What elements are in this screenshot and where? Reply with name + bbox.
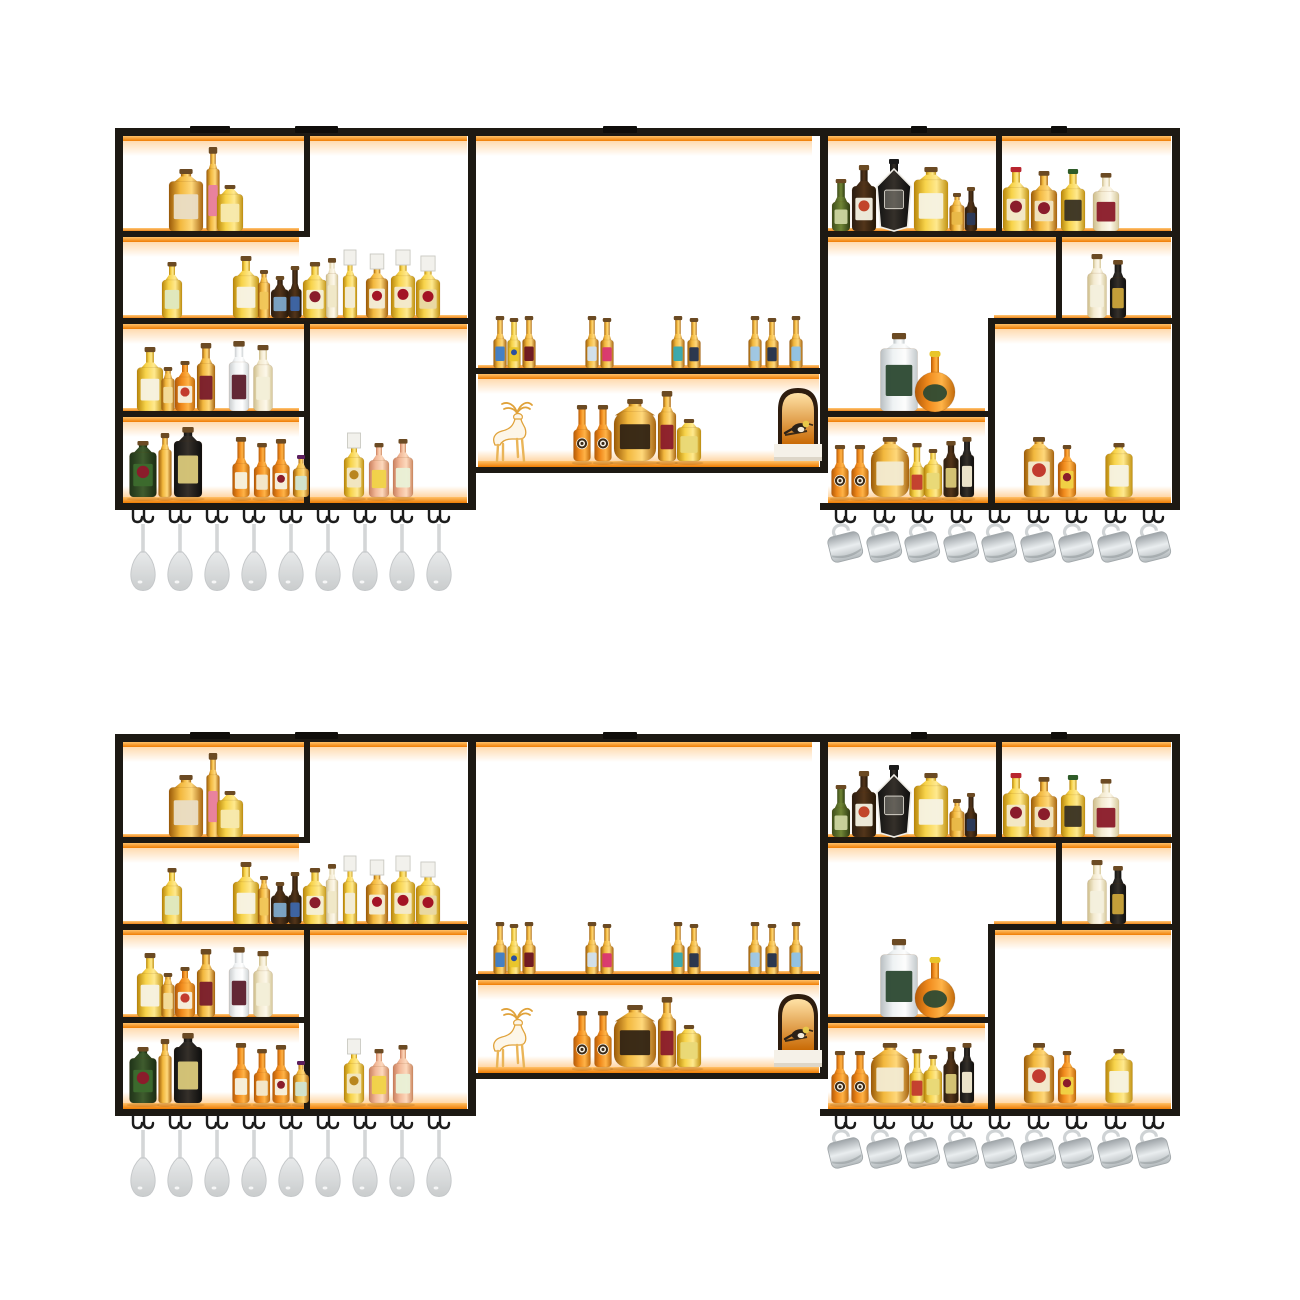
bottle [1059, 169, 1088, 235]
bar-shelf-scene [110, 732, 1190, 1212]
bottle [195, 949, 217, 1021]
hanging-hook [170, 510, 179, 522]
hanging-mug [824, 521, 864, 563]
hanging-hook [923, 1116, 932, 1128]
left-top-cell-bottles [166, 753, 246, 841]
wine-glass [168, 524, 192, 591]
right-top-left-bottles [830, 159, 978, 235]
middle-top-beer-bottles [492, 922, 804, 978]
bottle [584, 922, 600, 978]
mug-rack [824, 510, 1172, 563]
hanging-hook [1077, 510, 1086, 522]
bottle [1103, 443, 1135, 501]
wine-glass [353, 1130, 377, 1197]
wine-glass [205, 524, 229, 591]
middle-top-beer-bottles [492, 316, 804, 372]
bottle [908, 1049, 926, 1107]
hanging-hook [440, 510, 449, 522]
hanging-hook [366, 1116, 375, 1128]
hanging-hook [170, 1116, 179, 1128]
hanging-hook [875, 1116, 884, 1128]
bottle [1056, 1051, 1078, 1107]
hanging-hook [329, 1116, 338, 1128]
bottle [231, 437, 251, 501]
bottle [389, 250, 418, 322]
bottle [656, 391, 678, 465]
hanging-hook [392, 1116, 401, 1128]
frame-member [472, 467, 828, 473]
hanging-hook [318, 510, 327, 522]
right-bottom-left-bottles [830, 437, 976, 501]
bottle [656, 997, 678, 1071]
hanging-mug [1132, 521, 1172, 563]
bottle [414, 256, 443, 322]
left-top-cell-bottles [166, 147, 246, 235]
bottle [160, 868, 184, 928]
mounting-tab [603, 126, 637, 133]
bottle [1090, 173, 1121, 235]
bottle [342, 856, 359, 928]
bottle [908, 443, 926, 501]
hanging-hook [392, 510, 401, 522]
bottle [252, 443, 271, 501]
hanging-mug [1017, 521, 1057, 563]
bottle [610, 399, 660, 465]
hanging-hook [885, 510, 894, 522]
frame-member [988, 318, 1180, 324]
hanging-hook [836, 510, 845, 522]
bottle [257, 270, 271, 322]
bottle [959, 1043, 976, 1107]
mug-rack [824, 1116, 1172, 1169]
bottle [670, 316, 686, 372]
wine-glass-rack [131, 510, 451, 591]
hanging-hook [218, 1116, 227, 1128]
mounting-tab [190, 732, 230, 739]
hanging-mug [901, 1127, 941, 1169]
product-photo-canvas [0, 0, 1300, 1300]
hanging-hook [181, 510, 190, 522]
frame-member [1056, 837, 1062, 924]
bottle [342, 433, 366, 501]
bird-lamp [774, 388, 822, 461]
frame-member [996, 128, 1002, 231]
bottle [269, 882, 291, 928]
bottle [1086, 254, 1109, 322]
hanging-hook [207, 1116, 216, 1128]
wine-glass [131, 524, 155, 591]
bottle [959, 437, 976, 501]
bottle [675, 419, 704, 465]
wine-glass [131, 1130, 155, 1197]
bottle [964, 187, 978, 235]
bottle [1103, 1049, 1135, 1107]
hanging-mug [1017, 1127, 1057, 1169]
bottle [747, 922, 763, 978]
hanging-hook [1067, 1116, 1076, 1128]
bottle [127, 441, 159, 501]
frame-member [304, 734, 310, 837]
bottle [1108, 260, 1127, 322]
hanging-hook [952, 1116, 961, 1128]
bottle [942, 441, 960, 501]
bottle [367, 1049, 391, 1107]
bottle [166, 169, 207, 235]
frame-member [820, 734, 828, 1079]
bottle [850, 1051, 870, 1107]
hanging-hook [1154, 510, 1163, 522]
hanging-hook [292, 1116, 301, 1128]
hanging-hook [1144, 1116, 1153, 1128]
bottle [1028, 777, 1059, 841]
frame-member [472, 1073, 828, 1079]
bottle [364, 860, 390, 928]
wine-glass [205, 1130, 229, 1197]
hanging-hook [1039, 1116, 1048, 1128]
hanging-mug [940, 1127, 980, 1169]
bottle [391, 1045, 415, 1107]
bottle [686, 924, 702, 978]
hanging-mug [1094, 1127, 1134, 1169]
bottle [911, 167, 952, 235]
bottle [1000, 773, 1031, 841]
bottle [269, 276, 291, 322]
right-top-left-bottles [830, 765, 978, 841]
bar-shelf-display-bottom [110, 732, 1190, 1212]
hanging-hook [846, 510, 855, 522]
frame-member [820, 128, 828, 473]
frame-member [115, 128, 1180, 136]
bottle [301, 262, 330, 322]
bottle [367, 443, 391, 501]
mounting-tab [1051, 732, 1067, 739]
bottle [134, 347, 165, 415]
bottle [1021, 1043, 1057, 1107]
bottle [1021, 437, 1057, 501]
bottle [922, 1055, 944, 1107]
bottle [342, 1039, 366, 1107]
bottle [171, 427, 205, 501]
bottle [675, 1025, 704, 1071]
bottle [584, 316, 600, 372]
bottle [252, 951, 275, 1021]
bottle [195, 343, 217, 415]
hanging-hook [1106, 1116, 1115, 1128]
bottle [230, 862, 261, 928]
bar-shelf-scene [110, 126, 1190, 606]
bottle [850, 445, 870, 501]
bottle [830, 785, 852, 841]
bottle [506, 924, 522, 978]
bottle [364, 254, 390, 322]
bottle [788, 316, 804, 372]
wine-glass [390, 1130, 414, 1197]
bottle [521, 922, 537, 978]
mounting-tab [190, 126, 230, 133]
bottle [342, 250, 359, 322]
bottle [325, 258, 339, 322]
left-row2-bottles [160, 250, 442, 322]
right-mid-cell-bottles [1086, 860, 1128, 928]
hanging-hook [1039, 510, 1048, 522]
hanging-hook [923, 510, 932, 522]
hanging-hook [403, 1116, 412, 1128]
bottle [572, 405, 592, 465]
bottle [874, 765, 915, 841]
bottle [911, 957, 959, 1021]
bottle [1108, 866, 1127, 928]
hanging-mug [824, 1127, 864, 1169]
bottle [506, 318, 522, 372]
right-mid-shelf-bottles [877, 333, 959, 415]
bird-lamp [774, 994, 822, 1067]
hanging-hook [1144, 510, 1153, 522]
hanging-hook [875, 510, 884, 522]
mounting-tab [603, 732, 637, 739]
wine-glass [242, 1130, 266, 1197]
bottle [788, 922, 804, 978]
hanging-hook [913, 510, 922, 522]
frame-member [304, 128, 310, 231]
wine-glass [168, 1130, 192, 1197]
hanging-hook [846, 1116, 855, 1128]
bottle [942, 1047, 960, 1107]
left-row3-bottles [134, 341, 274, 415]
hanging-hook [1106, 510, 1115, 522]
frame-member [996, 734, 1002, 837]
bottle [160, 262, 184, 322]
bottle [127, 1047, 159, 1107]
hanging-hook [429, 510, 438, 522]
bar-shelf-display-top [110, 126, 1190, 606]
mounting-tab [295, 126, 338, 133]
bottle [1086, 860, 1109, 928]
bottle [1059, 775, 1088, 841]
bottle [252, 1049, 271, 1107]
hanging-hook [281, 1116, 290, 1128]
wine-glass-rack [131, 1116, 451, 1197]
bottle [171, 1033, 205, 1107]
bottle [948, 799, 966, 841]
bottle [867, 437, 913, 501]
bottle [877, 939, 921, 1021]
hanging-hook [207, 510, 216, 522]
hanging-mug [901, 521, 941, 563]
wine-glass [279, 1130, 303, 1197]
wine-glass [316, 1130, 340, 1197]
bottle [173, 967, 197, 1021]
hanging-hook [1000, 510, 1009, 522]
bottle [227, 947, 251, 1021]
bottle [850, 165, 879, 235]
bottle [830, 445, 850, 501]
bottle [572, 1011, 592, 1071]
bottle [874, 159, 915, 235]
bottle [287, 872, 303, 928]
hanging-hook [913, 1116, 922, 1128]
right-mid-shelf-bottles [877, 939, 959, 1021]
bottle [325, 864, 339, 928]
bottle [301, 868, 330, 928]
bottle [599, 924, 615, 978]
bottle [1056, 445, 1078, 501]
hanging-hook [1116, 1116, 1125, 1128]
bottle [877, 333, 921, 415]
bottle [830, 1051, 850, 1107]
right-top-right-bottles [1000, 773, 1121, 841]
right-top-right-bottles [1000, 167, 1121, 235]
hanging-hook [440, 1116, 449, 1128]
frame-member [115, 734, 1180, 742]
hanging-mug [978, 521, 1018, 563]
bottle [1090, 779, 1121, 841]
wine-glass [390, 524, 414, 591]
hanging-hook [255, 1116, 264, 1128]
wine-glass [279, 524, 303, 591]
wine-glass [353, 524, 377, 591]
hanging-hook [355, 1116, 364, 1128]
hanging-hook [1116, 510, 1125, 522]
hanging-hook [244, 1116, 253, 1128]
left-row3-bottles [134, 947, 274, 1021]
frame-member [1056, 231, 1062, 318]
bottle [157, 433, 173, 501]
bottle [134, 953, 165, 1021]
hanging-hook [429, 1116, 438, 1128]
bottle [1028, 171, 1059, 235]
bottle [414, 862, 443, 928]
hanging-hook [885, 1116, 894, 1128]
hanging-hook [181, 1116, 190, 1128]
bottle [257, 876, 271, 928]
hanging-hook [1077, 1116, 1086, 1128]
hanging-mug [863, 1127, 903, 1169]
bottle [389, 856, 418, 928]
bottle [867, 1043, 913, 1107]
bottle [593, 405, 613, 465]
frame-member [988, 924, 1180, 930]
wine-glass [242, 524, 266, 591]
hanging-hook [318, 1116, 327, 1128]
hanging-hook [218, 510, 227, 522]
bottle [391, 439, 415, 501]
hanging-hook [1029, 510, 1038, 522]
bottle [271, 1045, 291, 1107]
hanging-hook [366, 510, 375, 522]
wine-glass [427, 1130, 451, 1197]
right-mid-cell-bottles [1086, 254, 1128, 322]
hanging-mug [1132, 1127, 1172, 1169]
bottle [911, 773, 952, 841]
bottle [610, 1005, 660, 1071]
left-row2-bottles [160, 856, 442, 928]
hanging-hook [133, 510, 142, 522]
bottle [747, 316, 763, 372]
frame-member [115, 1109, 476, 1116]
bottle [686, 318, 702, 372]
bottle [166, 775, 207, 841]
bottle [764, 318, 780, 372]
bottle [173, 361, 197, 415]
bottle [948, 193, 966, 235]
mounting-tab [1051, 126, 1067, 133]
mounting-tab [911, 126, 927, 133]
hanging-hook [1067, 510, 1076, 522]
bottle [521, 316, 537, 372]
hanging-hook [133, 1116, 142, 1128]
bottle [964, 793, 978, 841]
bottle [492, 316, 508, 372]
bottle [911, 351, 959, 415]
hanging-mug [1055, 1127, 1095, 1169]
hanging-hook [292, 510, 301, 522]
bottle [830, 179, 852, 235]
hanging-hook [1029, 1116, 1038, 1128]
hanging-hook [255, 510, 264, 522]
bottle [157, 1039, 173, 1107]
bottle [764, 924, 780, 978]
hanging-hook [990, 510, 999, 522]
hanging-hook [403, 510, 412, 522]
bottle [850, 771, 879, 841]
bottle [1000, 167, 1031, 235]
hanging-hook [952, 510, 961, 522]
hanging-hook [962, 510, 971, 522]
bottle [670, 922, 686, 978]
mounting-tab [911, 732, 927, 739]
hanging-hook [244, 510, 253, 522]
hanging-mug [940, 521, 980, 563]
hanging-hook [144, 1116, 153, 1128]
hanging-hook [281, 510, 290, 522]
hanging-hook [355, 510, 364, 522]
bottle [271, 439, 291, 501]
bottle [492, 922, 508, 978]
hanging-hook [962, 1116, 971, 1128]
hanging-hook [990, 1116, 999, 1128]
bottle [599, 318, 615, 372]
bottle [227, 341, 251, 415]
hanging-hook [836, 1116, 845, 1128]
right-bottom-left-bottles [830, 1043, 976, 1107]
wine-glass [316, 524, 340, 591]
hanging-hook [1000, 1116, 1009, 1128]
hanging-hook [144, 510, 153, 522]
hanging-mug [1094, 521, 1134, 563]
hanging-hook [1154, 1116, 1163, 1128]
bottle [593, 1011, 613, 1071]
hanging-mug [1055, 521, 1095, 563]
hanging-hook [329, 510, 338, 522]
hanging-mug [978, 1127, 1018, 1169]
hanging-mug [863, 521, 903, 563]
bottle [287, 266, 303, 322]
bottle [230, 256, 261, 322]
frame-member [115, 503, 476, 510]
bottle [231, 1043, 251, 1107]
bottle [922, 449, 944, 501]
bottle [252, 345, 275, 415]
wine-glass [427, 524, 451, 591]
mounting-tab [295, 732, 338, 739]
